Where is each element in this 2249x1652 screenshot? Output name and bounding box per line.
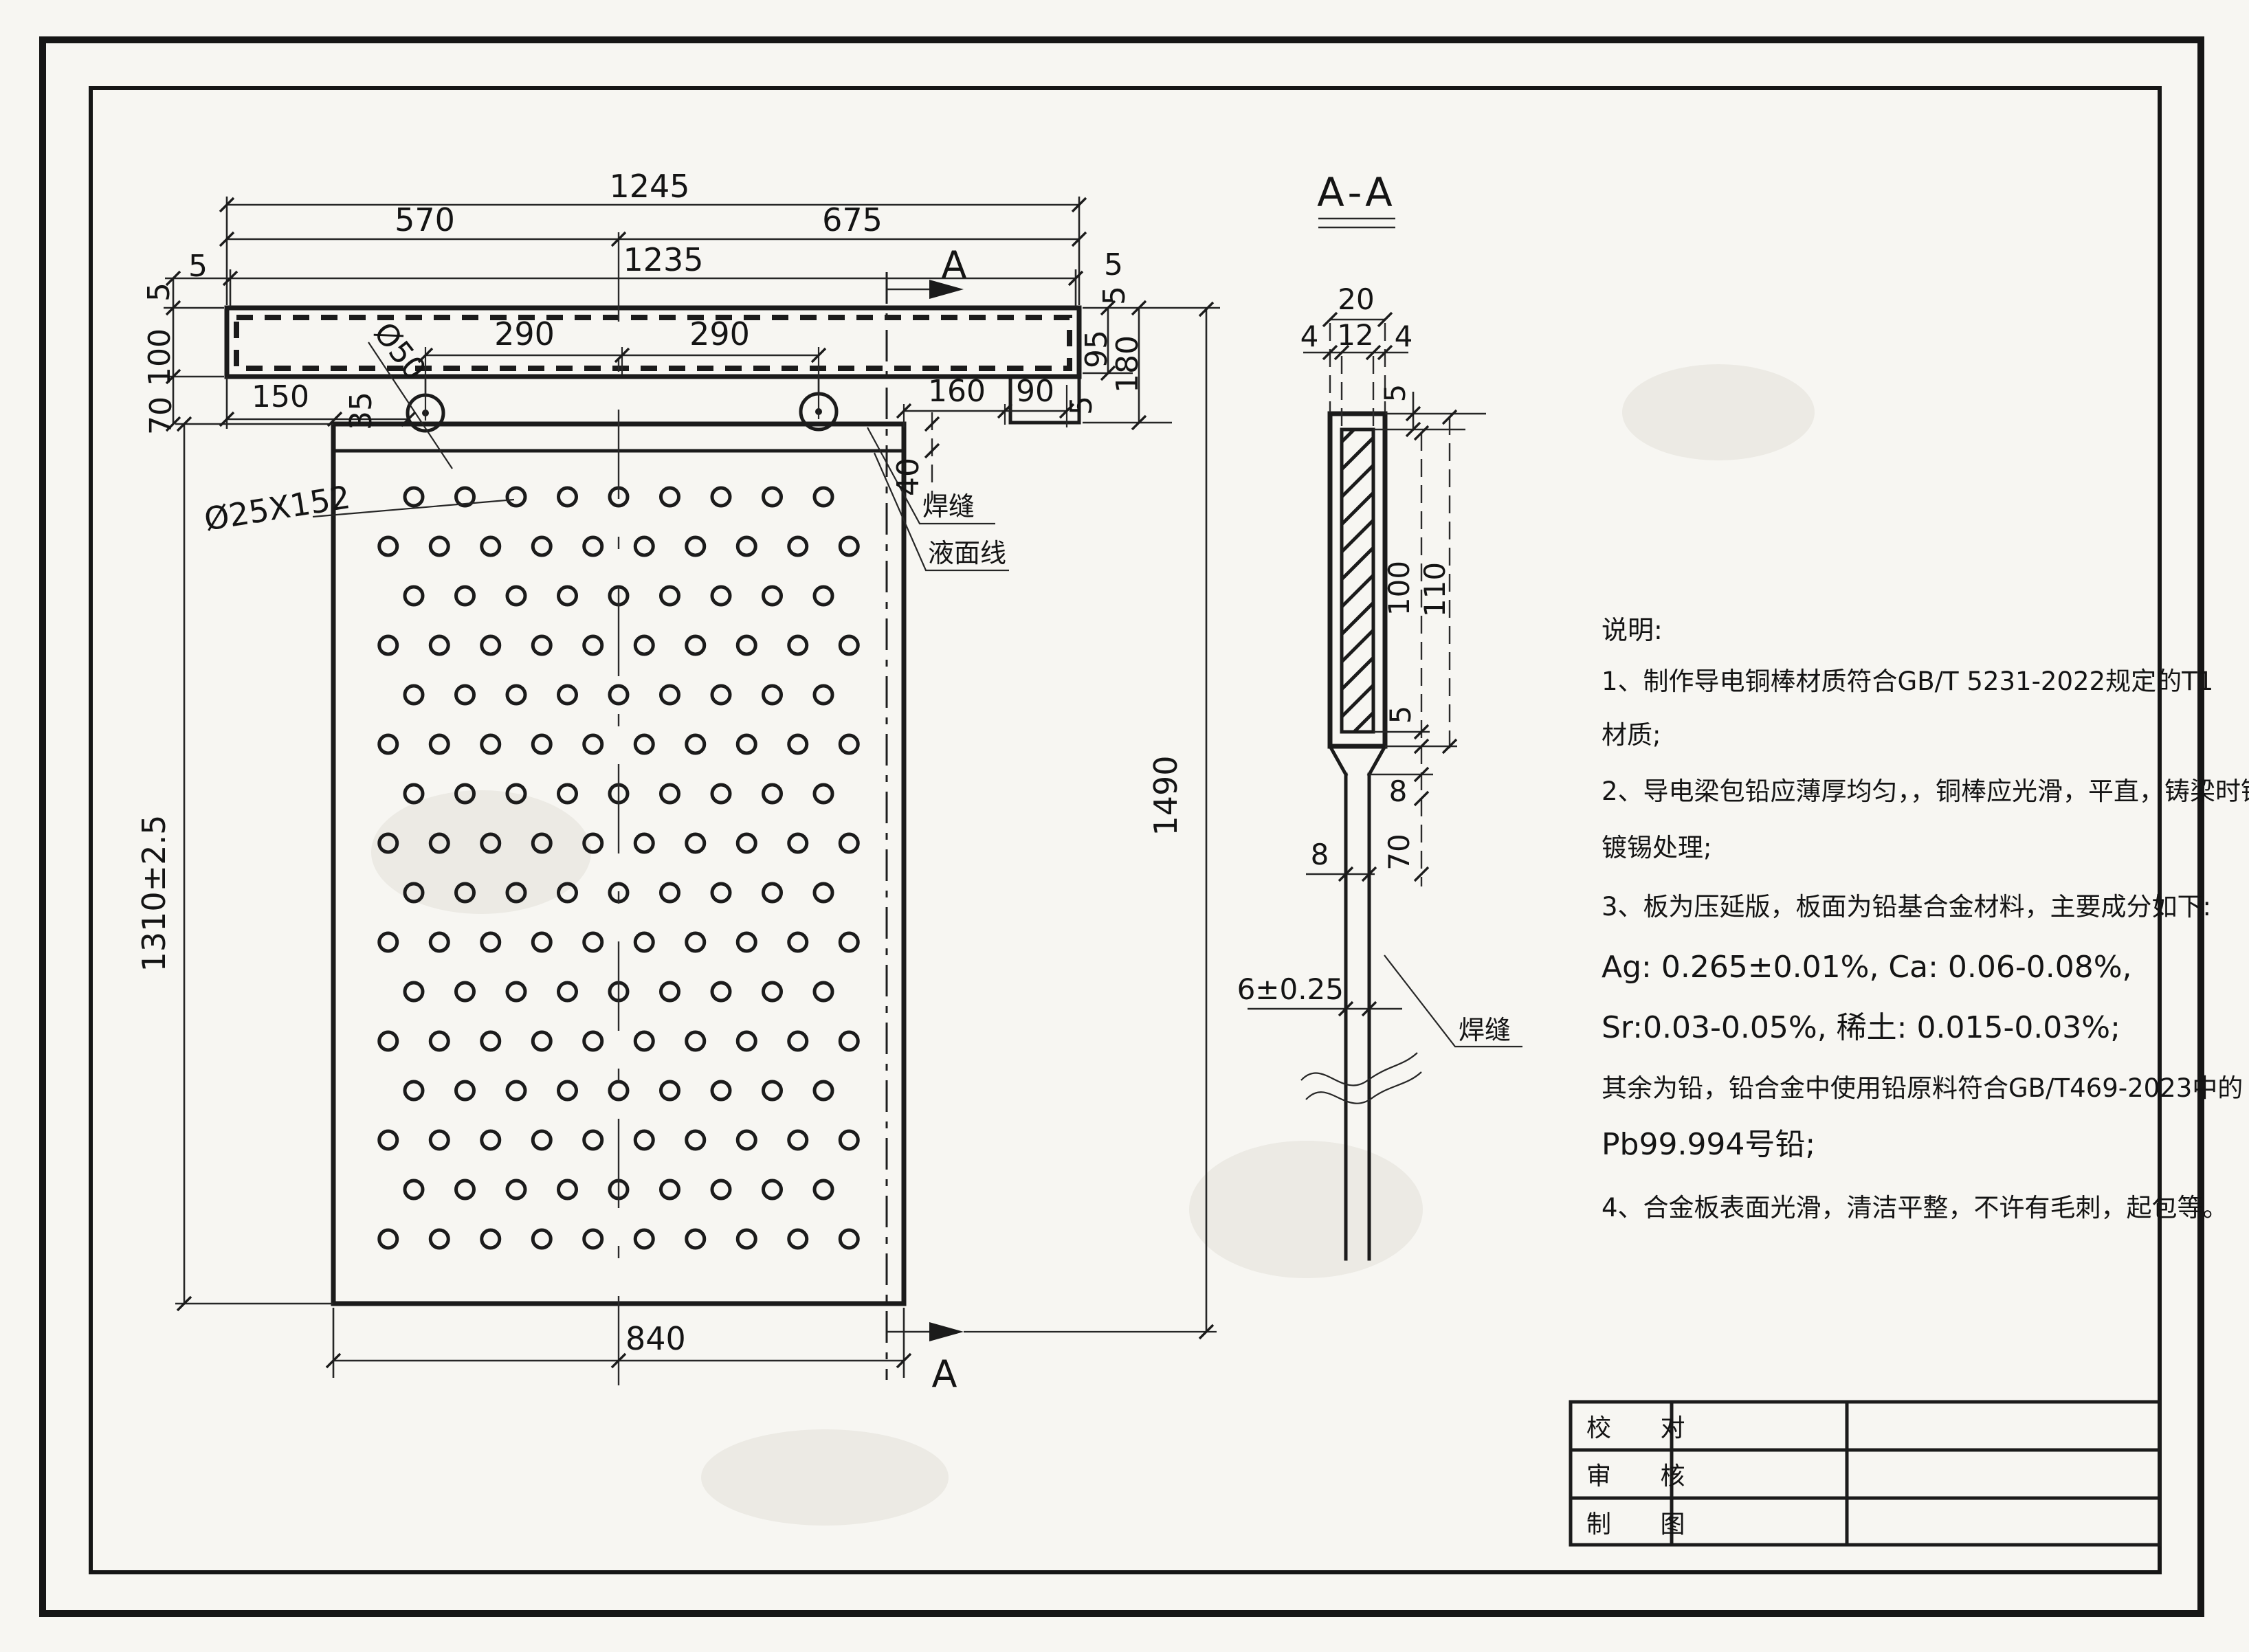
plan-view xyxy=(164,197,1220,1405)
plate-hole xyxy=(661,488,679,506)
hanger-bar-hidden-edge xyxy=(236,317,1070,368)
plate-hole xyxy=(533,636,551,654)
plate-hole xyxy=(507,1181,525,1198)
section-title: A-A xyxy=(1317,169,1397,216)
plate-hole xyxy=(815,587,832,605)
sdim-core-width: 12 xyxy=(1337,318,1373,352)
note-line: Pb99.994号铅; xyxy=(1602,1127,1815,1162)
plate-hole xyxy=(430,537,448,555)
sdim-core-height: 100 xyxy=(1382,561,1416,616)
dim-bar-left-to-plate: 150 xyxy=(252,379,309,414)
plate-hole xyxy=(687,1131,705,1149)
plate-hole xyxy=(815,884,832,902)
engineering-drawing: 1245 570 675 1235 5 5 5 5 100 70 150 35 … xyxy=(0,0,2249,1652)
note-line: 材质; xyxy=(1602,720,1661,750)
plate-hole xyxy=(687,636,705,654)
plate-hole xyxy=(507,983,525,1001)
plate-hole xyxy=(712,983,730,1001)
plate-hole xyxy=(840,1131,858,1149)
plate-hole xyxy=(789,1131,807,1149)
plate-hole xyxy=(482,636,500,654)
plate-hole xyxy=(840,933,858,951)
label-liquid-level: 液面线 xyxy=(928,538,1006,568)
sdim-cover-left: 4 xyxy=(1300,320,1319,353)
break-line xyxy=(1301,1053,1417,1085)
plate-hole xyxy=(815,686,832,704)
plate-hole xyxy=(559,587,577,605)
plate-hole xyxy=(687,1032,705,1050)
plate-hole xyxy=(507,1082,525,1100)
plate-hole xyxy=(687,834,705,852)
plate-hole xyxy=(482,1032,500,1050)
note-line: Ag: 0.265±0.01%, Ca: 0.06-0.08%, xyxy=(1602,950,2132,985)
hatch-line xyxy=(1330,478,1388,536)
plate-hole xyxy=(379,1032,397,1050)
plate-hole xyxy=(559,1181,577,1198)
plate-hole xyxy=(379,735,397,753)
hatch-line xyxy=(1330,395,1388,454)
dim-bar-to-plate: 70 xyxy=(144,397,179,435)
plate-hole xyxy=(840,1230,858,1248)
plate-hole xyxy=(379,933,397,951)
plate-hole xyxy=(661,686,679,704)
hatch-line xyxy=(1330,670,1388,728)
plate-hole xyxy=(533,933,551,951)
dim-inner-width: 1235 xyxy=(623,241,703,278)
plate-hole xyxy=(405,1082,423,1100)
plate-hole xyxy=(840,834,858,852)
dim-step-gap: 5 xyxy=(1064,396,1099,415)
plate-hole xyxy=(712,785,730,803)
sdim-outer-height: 110 xyxy=(1418,562,1452,617)
label-weld-seam: 焊缝 xyxy=(922,491,975,522)
plate-hole xyxy=(815,785,832,803)
plan-dimension-lines xyxy=(164,197,1220,1378)
break-line xyxy=(1306,1072,1421,1104)
plate-hole xyxy=(738,834,755,852)
plate-hole xyxy=(738,537,755,555)
section-letter-top: A xyxy=(942,243,967,287)
note-line: 镀锡处理; xyxy=(1602,833,1711,862)
plate-hole xyxy=(764,686,782,704)
plate-hole xyxy=(635,537,653,555)
plate-hole xyxy=(687,537,705,555)
plate-hole xyxy=(712,1082,730,1100)
plate-hole xyxy=(584,735,602,753)
plate-hole xyxy=(405,488,423,506)
plate-hole xyxy=(507,587,525,605)
plate-hole xyxy=(661,785,679,803)
plate-hole xyxy=(559,1082,577,1100)
plate-hole xyxy=(738,735,755,753)
plate-hole xyxy=(815,1082,832,1100)
plate-hole xyxy=(584,537,602,555)
dim-side-right-5: 5 xyxy=(1097,286,1132,305)
sdim-taper-length: 70 xyxy=(1382,834,1416,870)
plate-hole xyxy=(635,735,653,753)
plate-hole xyxy=(661,884,679,902)
hatch-line xyxy=(1330,643,1388,701)
plate-hole xyxy=(610,1082,628,1100)
plate-hole xyxy=(507,686,525,704)
plate-hole xyxy=(379,537,397,555)
hatch-line xyxy=(1330,588,1388,646)
plate-hole xyxy=(789,636,807,654)
dim-step-width: 90 xyxy=(1016,374,1054,409)
plate-hole xyxy=(584,1230,602,1248)
section-label-weld: 焊缝 xyxy=(1459,1015,1511,1045)
plate-hole xyxy=(789,1032,807,1050)
plate-hole xyxy=(687,735,705,753)
dim-gap-top-right: 5 xyxy=(1104,247,1123,282)
dim-end-total-height: 180 xyxy=(1110,335,1145,393)
plate-hole xyxy=(430,735,448,753)
plate-hole xyxy=(635,933,653,951)
sdim-cover-top: 5 xyxy=(1378,384,1412,403)
sdim-taper: 8 xyxy=(1389,774,1408,808)
plate-hole xyxy=(635,1230,653,1248)
plate-hole xyxy=(456,686,474,704)
plate-hole xyxy=(405,686,423,704)
note-line: 2、导电梁包铅应薄厚均匀，，铜棒应光滑，平直，铸梁时铜表面应 xyxy=(1602,777,2249,806)
note-line: 其余为铅，铅合金中使用铅原料符合GB/T469-2023中的 xyxy=(1602,1073,2243,1103)
note-line: Sr:0.03-0.05%, 稀土: 0.015-0.03%; xyxy=(1602,1010,2120,1045)
plate-hole xyxy=(379,1230,397,1248)
plate-hole xyxy=(559,785,577,803)
plate-hole xyxy=(456,1181,474,1198)
plate-hole xyxy=(559,488,577,506)
plate-hole xyxy=(712,488,730,506)
plate-hole xyxy=(610,686,628,704)
sdim-outer-width: 20 xyxy=(1338,282,1374,316)
plate-hole xyxy=(764,983,782,1001)
note-line: 3、板为压延版，板面为铅基合金材料，主要成分如下: xyxy=(1602,892,2211,922)
sdim-plate-thickness: 6±0.25 xyxy=(1237,972,1344,1006)
plate-hole xyxy=(507,488,525,506)
sdim-cover-right: 4 xyxy=(1395,320,1413,353)
plate-hole xyxy=(789,1230,807,1248)
hatch-line xyxy=(1330,615,1388,673)
plate-hole xyxy=(430,1230,448,1248)
plate-hole xyxy=(430,1032,448,1050)
plate-hole xyxy=(661,983,679,1001)
plate-hole xyxy=(430,1131,448,1149)
title-block-row-draft: 制 图 xyxy=(1586,1510,1705,1539)
plate-hole xyxy=(712,1181,730,1198)
plate-hole xyxy=(379,636,397,654)
plate-hole xyxy=(661,587,679,605)
plate-hole xyxy=(405,587,423,605)
plate-hole xyxy=(482,1230,500,1248)
dim-plate-to-lug: 35 xyxy=(344,392,379,430)
title-block-row-review: 审 核 xyxy=(1586,1462,1705,1491)
dim-span-right: 675 xyxy=(822,201,883,238)
dim-side-left-5: 5 xyxy=(142,282,177,302)
dim-weld-band: 40 xyxy=(891,458,926,496)
dim-lug-pitch-right: 290 xyxy=(689,315,750,353)
dim-overall-height: 1490 xyxy=(1147,755,1184,836)
plate-hole xyxy=(764,488,782,506)
hatch-line xyxy=(1330,423,1388,481)
plate-hole xyxy=(789,537,807,555)
hatch-line xyxy=(1330,450,1388,509)
plate-hole xyxy=(584,933,602,951)
plate-hole xyxy=(764,785,782,803)
plate-hole xyxy=(635,636,653,654)
plate-hole xyxy=(635,1131,653,1149)
plate-hole xyxy=(635,834,653,852)
section-lead-cover xyxy=(1330,414,1385,746)
plate-hole xyxy=(738,1032,755,1050)
plate-hole xyxy=(738,636,755,654)
plate-hole xyxy=(584,1032,602,1050)
plate-hole xyxy=(379,1131,397,1149)
sdim-cover-bottom: 5 xyxy=(1384,706,1417,724)
hatch-line xyxy=(1330,505,1388,563)
plate-hole xyxy=(584,636,602,654)
section-view xyxy=(1248,219,1522,1259)
plate-hole xyxy=(482,933,500,951)
dim-bar-height: 100 xyxy=(142,328,177,386)
plate-hole xyxy=(764,884,782,902)
plate-hole xyxy=(533,1230,551,1248)
plate-hole xyxy=(764,587,782,605)
note-line: 1、制作导电铜棒材质符合GB/T 5231-2022规定的T1 xyxy=(1602,667,2213,696)
plate-hole xyxy=(815,488,832,506)
dim-lug-pitch-left: 290 xyxy=(494,315,555,353)
plate-hole xyxy=(482,735,500,753)
plate-hole xyxy=(559,983,577,1001)
dim-right-edge-to-step: 160 xyxy=(928,374,986,409)
plate-hole xyxy=(430,933,448,951)
dim-plate-height: 1310±2.5 xyxy=(135,815,173,972)
dim-total-width: 1245 xyxy=(609,168,689,205)
plate-hole xyxy=(789,834,807,852)
plate-hole xyxy=(533,1032,551,1050)
plate-hole xyxy=(712,686,730,704)
title-block-row-check: 校 对 xyxy=(1586,1414,1705,1442)
sdim-stem-width: 8 xyxy=(1311,838,1329,871)
plate-hole xyxy=(661,1181,679,1198)
plate-hole xyxy=(456,1082,474,1100)
plate-hole xyxy=(815,1181,832,1198)
plate-hole xyxy=(405,1181,423,1198)
section-letter-bottom: A xyxy=(932,1352,957,1396)
plate-hole xyxy=(456,983,474,1001)
section-arrow-bottom xyxy=(887,1322,1217,1341)
plate-hole xyxy=(533,537,551,555)
plate-hole xyxy=(430,636,448,654)
plate-hole xyxy=(661,1082,679,1100)
plate-hole xyxy=(687,933,705,951)
dim-span-left: 570 xyxy=(395,201,455,238)
plate-hole xyxy=(840,636,858,654)
plate-hole xyxy=(635,1032,653,1050)
plate-hole xyxy=(789,933,807,951)
plate-hole xyxy=(815,983,832,1001)
plate-hole xyxy=(405,785,423,803)
plate-hole xyxy=(712,884,730,902)
plate-hole xyxy=(840,537,858,555)
plate-hole xyxy=(764,1082,782,1100)
plate-hole xyxy=(738,1131,755,1149)
plate-hole xyxy=(482,1131,500,1149)
notes-heading: 说明: xyxy=(1602,615,1663,645)
plate-hole xyxy=(405,983,423,1001)
plate-hole xyxy=(840,735,858,753)
dim-plate-width: 840 xyxy=(625,1320,686,1357)
plate-hole xyxy=(482,537,500,555)
dim-end-height: 95 xyxy=(1079,330,1114,368)
plate-hole xyxy=(764,1181,782,1198)
plate-hole xyxy=(687,1230,705,1248)
plate-hole xyxy=(533,1131,551,1149)
dim-gap-top-left: 5 xyxy=(188,249,208,284)
plate-hole xyxy=(840,1032,858,1050)
plate-hole xyxy=(738,1230,755,1248)
note-line: 4、合金板表面光滑，清洁平整，不许有毛刺，起包等。 xyxy=(1602,1193,2228,1223)
hatch-line xyxy=(1330,560,1388,618)
plate-hole xyxy=(789,735,807,753)
plate-hole xyxy=(533,735,551,753)
plate-hole xyxy=(559,686,577,704)
hatch-line xyxy=(1330,533,1388,591)
plate-hole xyxy=(456,587,474,605)
plate-hole xyxy=(584,1131,602,1149)
plate-hole xyxy=(738,933,755,951)
drawing-sheet: 1245 570 675 1235 5 5 5 5 100 70 150 35 … xyxy=(0,0,2249,1652)
dim-hole-spec: Ø25X152 xyxy=(201,478,353,538)
plate-hole xyxy=(712,587,730,605)
